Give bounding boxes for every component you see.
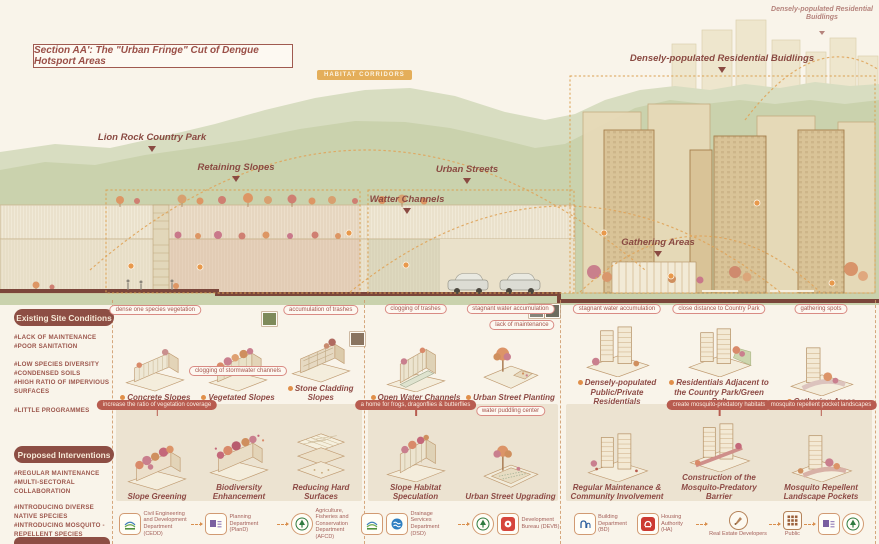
proposed-water-row: a home for frogs, dragonflies & butterfl… xyxy=(368,406,558,501)
condition-badge: clogging of trashes xyxy=(384,304,446,314)
stakeholder-name: Real Estate Developers xyxy=(709,531,767,537)
condition-badge: clogging of stormwater channels xyxy=(189,366,287,376)
existing-item-stone-cladding-slopes: accumulation of trashes Stone Cladding S… xyxy=(279,306,362,402)
tag: #INTRODUCING DIVERSE NATIVE SPECIES xyxy=(14,504,111,522)
divider xyxy=(875,300,876,544)
proposed-item-biodiversity-enhancement: Biodiversity Enhancement xyxy=(198,406,280,501)
poster-canvas: Section AA': The "Urban Fringe" Cut of D… xyxy=(0,0,879,544)
afcd-logo-icon xyxy=(842,513,864,535)
existing-water-row: clogging of trashes Open Water Channels … xyxy=(368,306,558,402)
barrier-thumbnail xyxy=(682,422,756,472)
proposed-interventions-header: Proposed Interventions xyxy=(14,446,114,463)
stakeholder-name: Development Bureau (DEVB) xyxy=(522,517,566,530)
existing-item-gathering-areas: gathering spots Gathering Areas xyxy=(770,306,872,406)
cutoff-header-badge xyxy=(14,537,110,544)
condition-badge: gathering spots xyxy=(794,304,847,314)
cedd-logo-icon xyxy=(361,513,383,535)
condition-badge: close distance to Country Park xyxy=(672,304,765,314)
tag: #POOR SANITATION xyxy=(14,343,111,352)
stakeholder-name: Agriculture, Fisheries and Conservation … xyxy=(316,508,360,541)
stakeholder-name: Planning Department (PlanD) xyxy=(230,514,274,534)
layers-thumbnail xyxy=(286,432,356,482)
afcd-logo-icon xyxy=(291,513,313,535)
maintenance-thumbnail xyxy=(580,432,654,482)
stakeholder-name: Drainage Services Department (DSD) xyxy=(411,511,455,537)
stone-slope-thumbnail xyxy=(286,333,356,383)
divider xyxy=(112,300,113,544)
devb-logo-icon xyxy=(497,513,519,535)
real-estate-developers-icon xyxy=(729,511,748,530)
label-residential-small: Densely-populated Residential Buidlings xyxy=(767,6,877,23)
building-department-logo-icon xyxy=(574,513,596,535)
existing-item-vegetated-slopes: clogging of stormwater channels Vegetate… xyxy=(197,306,280,402)
stakeholder-name: Housing Authority (HA) xyxy=(661,514,693,534)
proposed-item-mosquito-repellent-pockets: mosquito repellent pocket landscapes Mos… xyxy=(770,406,872,501)
tag: #HIGH RATIO OF IMPERVIOUS SURFACES xyxy=(14,379,111,397)
pointer-icon xyxy=(403,208,411,214)
flow-arrow-icon xyxy=(191,524,202,525)
public-icon xyxy=(783,511,802,530)
proposed-slopes-row: increase the ratio of vegetation coverag… xyxy=(116,406,362,501)
real-estate-developers-group: Real Estate Developers xyxy=(709,511,767,537)
label-residential-buildings: Densely-populated Residential Buidlings xyxy=(630,53,814,64)
housing-authority-logo-icon xyxy=(637,513,659,535)
proposed-item-slope-habitat-speculation: a home for frogs, dragonflies & butterfl… xyxy=(368,406,463,501)
proposed-item-mosquito-predatory-barrier: create mosquito-predatory habitats Const… xyxy=(668,406,770,501)
intervention-badge: create mosquito-predatory habitats xyxy=(667,400,772,410)
label-gathering-areas: Gathering Areas xyxy=(621,237,695,248)
condition-badge: stagnant water accumulation xyxy=(466,304,554,314)
tag: #LOW SPECIES DIVERSITY xyxy=(14,361,111,370)
slope-habitat-thumbnail xyxy=(381,432,451,482)
public-group: Public xyxy=(783,511,802,537)
item-bullet xyxy=(669,380,674,385)
flow-arrow-icon xyxy=(458,524,469,525)
flow-arrow-icon xyxy=(277,524,288,525)
proposed-residential-row: Regular Maintenance & Community Involvem… xyxy=(566,406,872,501)
existing-item-open-water-channels: clogging of trashes Open Water Channels xyxy=(368,306,463,402)
afcd-logo-icon xyxy=(472,513,494,535)
label-urban-streets: Urban Streets xyxy=(436,164,498,175)
condition-badge: accumulation of trashes xyxy=(283,305,358,315)
pland-logo-icon xyxy=(205,513,227,535)
existing-item-concrete-slopes: dense one species vegetation Concrete Sl… xyxy=(114,306,197,402)
existing-item-urban-street-planting: stagnant water accumulation lack of main… xyxy=(463,306,558,402)
proposed-item-urban-street-upgrading: water puddling center Urban Street Upgra… xyxy=(463,406,558,501)
site-photo xyxy=(350,332,365,346)
section-title: Section AA': The "Urban Fringe" Cut of D… xyxy=(33,44,293,68)
lcsd-logo-icon xyxy=(818,513,840,535)
intervention-badge: increase the ratio of vegetation coverag… xyxy=(97,400,217,410)
proposed-item-regular-maintenance: Regular Maintenance & Community Involvem… xyxy=(566,406,668,501)
gathering-areas-thumbnail xyxy=(784,344,858,396)
divider xyxy=(560,300,561,544)
site-photo xyxy=(262,312,277,326)
cedd-logo-icon xyxy=(119,513,141,535)
street-planting-thumbnail xyxy=(476,342,546,392)
proposed-tags: #REGULAR MAINTENANCE #MULTI-SECTORAL COL… xyxy=(14,470,111,544)
flow-arrow-icon xyxy=(769,524,780,525)
existing-item-residentials-adjacent-park: close distance to Country Park Residenti… xyxy=(668,306,770,406)
stakeholder-name: Building Department (BD) xyxy=(598,514,634,534)
existing-slopes-row: dense one species vegetation Concrete Sl… xyxy=(114,306,362,402)
pointer-icon xyxy=(654,251,662,257)
residential-towers-thumbnail xyxy=(580,325,654,377)
stakeholder-name: Public xyxy=(785,531,800,537)
stakeholders-panel1: Civil Engineering and Development Depart… xyxy=(116,506,362,542)
street-upgrading-thumbnail xyxy=(476,441,546,491)
pointer-icon xyxy=(148,146,156,152)
intervention-badge: a home for frogs, dragonflies & butterfl… xyxy=(355,400,477,410)
concrete-slope-thumbnail xyxy=(120,342,190,392)
label-retaining-slopes: Retaining Slopes xyxy=(197,162,274,173)
condition-badge: stagnant water accumulation xyxy=(573,304,661,314)
stakeholder-name: Civil Engineering and Development Depart… xyxy=(144,511,188,537)
habitat-corridors-badge: HABITAT CORRIDORS xyxy=(317,70,412,80)
item-bullet xyxy=(578,380,583,385)
pointer-icon xyxy=(232,176,240,182)
residentials-greenbelt-thumbnail xyxy=(682,325,756,377)
stakeholders-panel2: Drainage Services Department (DSD) Devel… xyxy=(368,506,558,542)
tag: #LACK OF MAINTENANCE xyxy=(14,334,111,343)
proposed-item-reducing-hard-surfaces: Reducing Hard Surfaces xyxy=(280,406,362,501)
pointer-icon xyxy=(718,67,726,73)
label-water-channels: Watter Channels xyxy=(370,194,445,205)
tag: #LITTLE PROGRAMMES xyxy=(14,407,111,416)
pointer-icon xyxy=(819,31,825,35)
flow-arrow-icon xyxy=(804,524,815,525)
slope-greening-thumbnail xyxy=(122,441,192,491)
existing-residential-row: stagnant water accumulation Densely-popu… xyxy=(566,306,872,406)
label-lion-rock-country-park: Lion Rock Country Park xyxy=(98,132,206,143)
landscape-pockets-thumbnail xyxy=(784,432,858,482)
existing-conditions-header: Existing Site Conditions xyxy=(14,309,114,326)
pointer-icon xyxy=(463,178,471,184)
retaining-walls xyxy=(0,205,575,293)
tag: #MULTI-SECTORAL COLLABORATION xyxy=(14,479,111,497)
stakeholders-panel3: Building Department (BD) Housing Authori… xyxy=(566,506,872,542)
water-channel-thumbnail xyxy=(381,342,451,392)
biodiversity-thumbnail xyxy=(204,432,274,482)
item-bullet xyxy=(288,386,293,391)
existing-item-densely-populated-residentials: stagnant water accumulation Densely-popu… xyxy=(566,306,668,406)
tag: #REGULAR MAINTENANCE xyxy=(14,470,111,479)
intervention-badge: mosquito repellent pocket landscapes xyxy=(765,400,877,410)
flow-arrow-icon xyxy=(696,524,707,525)
condition-badge: dense one species vegetation xyxy=(110,305,201,315)
intervention-badge: water puddling center xyxy=(476,406,545,416)
dsd-logo-icon xyxy=(386,513,408,535)
condition-badge: lack of maintenance xyxy=(489,320,554,330)
tag: #CONDENSED SOILS xyxy=(14,370,111,379)
proposed-item-slope-greening: increase the ratio of vegetation coverag… xyxy=(116,406,198,501)
